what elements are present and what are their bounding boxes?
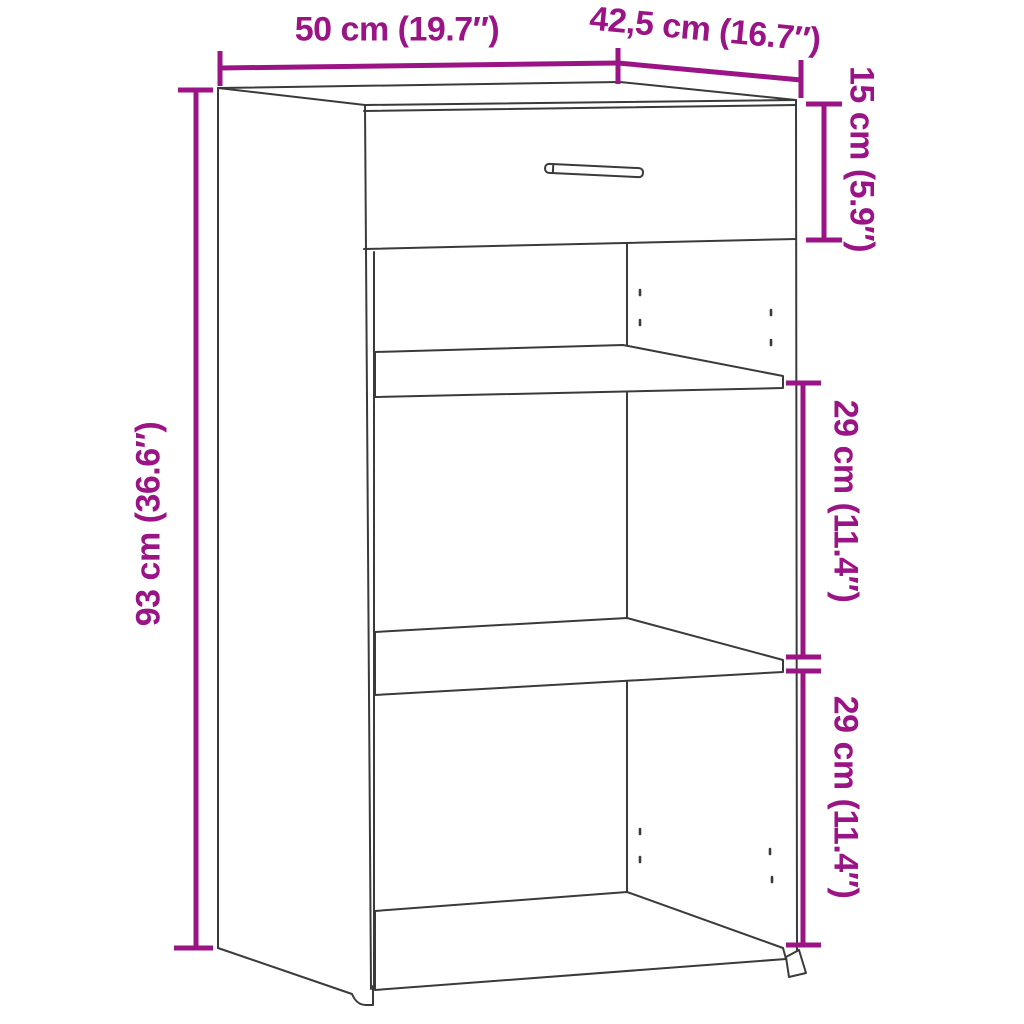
- drawer-front: [364, 105, 796, 249]
- compartment-1-height-label: 29 cm (11.4″): [826, 400, 865, 603]
- drawer-height-label: 15 cm (5.9″): [842, 66, 881, 252]
- cabinet-left-bottom-edge: [218, 948, 373, 1005]
- height-dimension-label: 93 cm (36.6″): [130, 422, 169, 626]
- width-dimension-label: 50 cm (19.7″): [295, 11, 499, 50]
- depth-dimension-line: [618, 60, 801, 98]
- cabinet-right-edge: [796, 100, 797, 951]
- dimension-lines: [174, 48, 842, 948]
- compartment-2-dimension-line: [786, 671, 821, 945]
- height-dimension-line: [174, 90, 213, 948]
- shelf-upper: [375, 345, 783, 397]
- drawer-height-dimension-line: [806, 104, 842, 240]
- cabinet: [218, 82, 806, 1005]
- width-dimension-line: [220, 48, 618, 86]
- dimension-diagram: 50 cm (19.7″) 42,5 cm (16.7″) 15 cm (5.9…: [0, 0, 1024, 1024]
- drawer-bottom-edge: [364, 239, 796, 249]
- shelf-lower: [375, 618, 783, 695]
- front-right-foot: [786, 950, 806, 977]
- compartment-1-dimension-line: [786, 383, 821, 657]
- drawer-top-edge: [364, 105, 796, 111]
- compartment-2-height-label: 29 cm (11.4″): [826, 696, 865, 899]
- cabinet-front-left-edge: [365, 105, 371, 989]
- cabinet-top: [218, 82, 796, 105]
- drawer-handle: [545, 164, 643, 178]
- bottom-panel: [375, 892, 786, 990]
